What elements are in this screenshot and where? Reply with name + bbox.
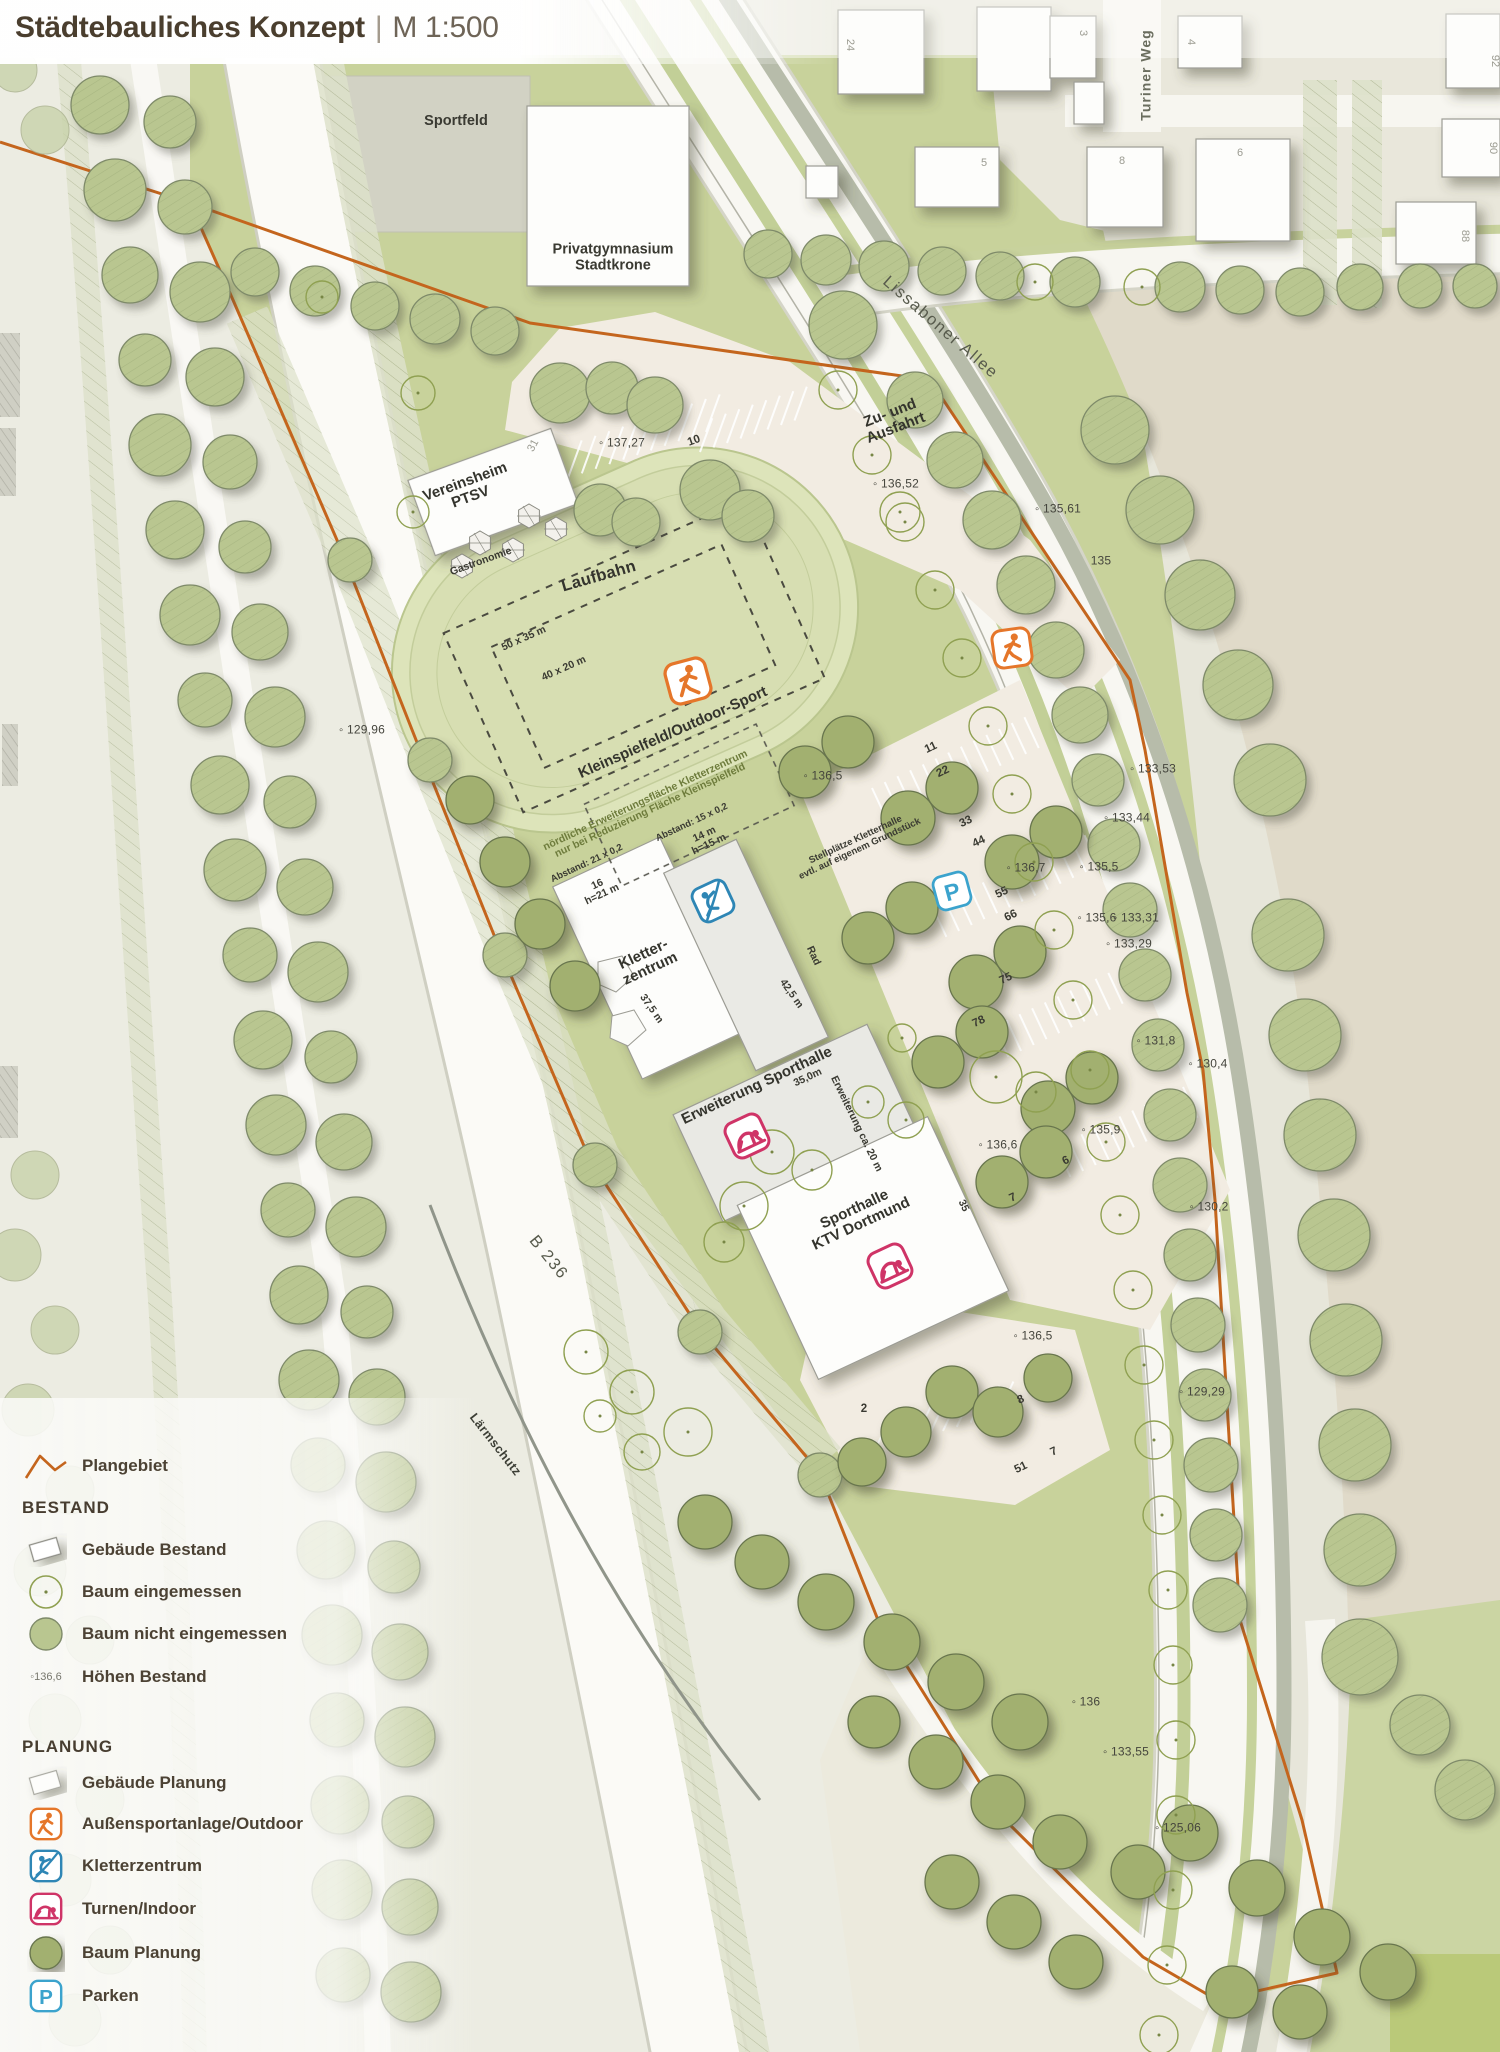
legend-header-bestand: BESTAND (22, 1498, 110, 1518)
bldgB-icon (22, 1533, 70, 1567)
tree-bestand (1103, 883, 1157, 937)
tree-bestand (288, 942, 348, 1002)
tree-bestand (976, 252, 1024, 300)
tree-bestand (809, 291, 877, 359)
tree-bestand (160, 585, 220, 645)
tree-planung (928, 1654, 984, 1710)
tree-bestand (1252, 899, 1324, 971)
tree-bestand (1398, 264, 1442, 308)
legend-item-treeR: Baum eingemessen (22, 1572, 242, 1612)
tree-bestand (158, 180, 212, 234)
tree-planung (973, 1387, 1023, 1437)
tree-bestand (1164, 1229, 1216, 1281)
tree-planung (848, 1696, 900, 1748)
elev-icon: ◦136,6 (22, 1671, 70, 1683)
tree-planung (881, 791, 935, 845)
legend-item-bldgB: Gebäude Bestand (22, 1530, 227, 1570)
tree-planung (446, 776, 494, 824)
tree-planung (515, 899, 565, 949)
building (806, 166, 838, 198)
treeP-icon (22, 1934, 70, 1972)
tree-bestand (234, 1011, 292, 1069)
tree-planung (822, 716, 874, 768)
tree-bestand (277, 859, 333, 915)
tree-planung (1020, 1126, 1072, 1178)
tree-bestand (1435, 1760, 1495, 1820)
tree-bestand (1310, 1304, 1382, 1376)
tree-bestand (1081, 396, 1149, 464)
tree-planung (798, 1574, 854, 1630)
tree-bestand (1072, 754, 1124, 806)
tree-bestand (1453, 264, 1497, 308)
tree-bestand (1337, 264, 1383, 310)
tree-bestand (1144, 1089, 1196, 1141)
tree-planung (971, 1775, 1025, 1829)
tree-planung (987, 1895, 1041, 1949)
title-scale: M 1:500 (392, 11, 498, 44)
tree-bestand (326, 1197, 386, 1257)
tree-bestand (186, 348, 244, 406)
tree-bestand (231, 248, 279, 296)
tree-bestand (1126, 476, 1194, 544)
tree-planung (956, 1006, 1008, 1058)
tree-bestand (1298, 1199, 1370, 1271)
tree-bestand (1319, 1409, 1391, 1481)
tree-bestand (627, 377, 683, 433)
tree-bestand (1050, 257, 1100, 307)
tree-bestand (84, 159, 146, 221)
tree-bestand (1190, 1509, 1242, 1561)
bldgP-icon (22, 1766, 70, 1800)
tree-bestand (1203, 650, 1273, 720)
tree-bestand (129, 414, 191, 476)
legend-item-label: Höhen Bestand (82, 1667, 207, 1687)
tree-bestand (102, 247, 158, 303)
tree-bestand (1052, 687, 1108, 743)
tree-bestand (859, 241, 909, 291)
site-plan-map: P (0, 0, 1500, 2052)
tree-bestand (410, 294, 460, 344)
tree-bestand (1028, 622, 1084, 678)
tree-planung (925, 1855, 979, 1909)
tree-bestand (328, 538, 372, 582)
tree-bestand (341, 1286, 393, 1338)
tree-planung (735, 1535, 789, 1589)
title-separator: | (365, 11, 393, 44)
tree-planung (1033, 1815, 1087, 1869)
tree-bestand (722, 490, 774, 542)
gym-icon (22, 1892, 70, 1926)
legend-item-gym: Turnen/Indoor (22, 1889, 196, 1929)
tree-bestand (1322, 1619, 1398, 1695)
tree-planung (909, 1735, 963, 1789)
building (1196, 139, 1290, 241)
legend-header-planung: PLANUNG (22, 1737, 113, 1757)
tree-bestand (887, 372, 943, 428)
legend-item-treeP: Baum Planung (22, 1933, 201, 1973)
tree-muted (31, 1306, 79, 1354)
tree-bestand (1284, 1099, 1356, 1171)
tree-planung (886, 882, 938, 934)
tree-bestand (316, 1114, 372, 1170)
tree-planung (949, 955, 1003, 1009)
tree-bestand (71, 76, 129, 134)
tree-bestand (1216, 266, 1264, 314)
tree-bestand (305, 1031, 357, 1083)
runner-icon (22, 1807, 70, 1841)
tree-bestand (997, 556, 1055, 614)
tree-planung (864, 1614, 920, 1670)
legend-item-treeB: Baum nicht eingemessen (22, 1614, 287, 1654)
tree-bestand (1155, 262, 1205, 312)
legend-item-label: Außensportanlage/Outdoor (82, 1814, 303, 1834)
tree-bestand (191, 756, 249, 814)
legend-item-parkP: Parken (22, 1976, 139, 2016)
tree-bestand (1193, 1578, 1247, 1632)
tree-bestand (612, 498, 660, 546)
tree-bestand (270, 1266, 328, 1324)
tree-bestand (1165, 560, 1235, 630)
tree-planung (842, 912, 894, 964)
legend-item-bldgP: Gebäude Planung (22, 1763, 227, 1803)
legend-item-elev: ◦136,6Höhen Bestand (22, 1657, 207, 1697)
legend-item-label: Kletterzentrum (82, 1856, 202, 1876)
tree-bestand (918, 247, 966, 295)
legend-item-runner: Außensportanlage/Outdoor (22, 1804, 303, 1844)
legend-item-label: Plangebiet (82, 1456, 168, 1476)
tree-planung (912, 1036, 964, 1088)
tree-planung (1030, 806, 1082, 858)
tree-bestand (203, 435, 257, 489)
tree-planung (926, 1366, 978, 1418)
map-canvas: P (0, 0, 1500, 2052)
building (1087, 147, 1163, 227)
tree-planung (480, 837, 530, 887)
tree-bestand (1390, 1695, 1450, 1755)
building (1074, 82, 1104, 124)
legend-item-label: Parken (82, 1986, 139, 2006)
tree-bestand (1132, 1019, 1184, 1071)
tree-planung (1294, 1909, 1350, 1965)
tree-bestand (1153, 1158, 1207, 1212)
tree-muted (21, 106, 69, 154)
tree-planung (976, 1156, 1028, 1208)
tree-bestand (530, 363, 590, 423)
tree-bestand (170, 262, 230, 322)
tree-bestand (246, 1095, 306, 1155)
tree-planung (926, 762, 978, 814)
building (1442, 119, 1500, 177)
tree-bestand (573, 1143, 617, 1187)
parkP-icon (22, 1979, 70, 2013)
tree-planung (678, 1495, 732, 1549)
tree-planung (1360, 1944, 1416, 2000)
tree-planung (1273, 1985, 1327, 2039)
building (1396, 202, 1476, 264)
tree-bestand (232, 604, 288, 660)
tree-bestand (144, 96, 196, 148)
tree-planung (1206, 1966, 1258, 2018)
tree-bestand (744, 230, 792, 278)
tree-bestand (1184, 1438, 1238, 1492)
legend-item-label: Baum Planung (82, 1943, 201, 1963)
tree-planung (779, 746, 831, 798)
legend-item-plangebiet: Plangebiet (22, 1446, 168, 1486)
tree-bestand (408, 738, 452, 782)
tree-bestand (1234, 744, 1306, 816)
building (527, 106, 689, 286)
tree-planung (1111, 1845, 1165, 1899)
tree-bestand (801, 235, 851, 285)
building (915, 147, 999, 207)
tree-bestand (1119, 949, 1171, 1001)
tree-bestand (261, 1183, 315, 1237)
tree-bestand (223, 928, 277, 982)
tree-bestand (204, 839, 266, 901)
tree-bestand (119, 334, 171, 386)
legend-item-label: Turnen/Indoor (82, 1899, 196, 1919)
page-title: Städtebauliches Konzept|M 1:500 (15, 11, 499, 45)
tree-bestand (1179, 1369, 1231, 1421)
climber-icon (22, 1849, 70, 1883)
treeR-icon (22, 1573, 70, 1611)
tree-bestand (471, 307, 519, 355)
legend-item-label: Baum eingemessen (82, 1582, 242, 1602)
tree-bestand (678, 1310, 722, 1354)
title-main: Städtebauliches Konzept (15, 11, 365, 44)
tree-bestand (1171, 1298, 1225, 1352)
legend-item-label: Gebäude Bestand (82, 1540, 227, 1560)
legend-item-climber: Kletterzentrum (22, 1846, 202, 1886)
tree-bestand (264, 776, 316, 828)
tree-planung (838, 1438, 886, 1486)
tree-bestand (1324, 1514, 1396, 1586)
plangebiet-icon (22, 1446, 70, 1486)
tree-planung (992, 1694, 1048, 1750)
tree-bestand (963, 491, 1021, 549)
tree-bestand (351, 282, 399, 330)
tree-bestand (798, 1453, 842, 1497)
tree-planung (994, 926, 1046, 978)
tree-bestand (178, 673, 232, 727)
tree-planung (1229, 1860, 1285, 1916)
tree-bestand (219, 521, 271, 573)
treeB-icon (22, 1615, 70, 1653)
tree-bestand (146, 501, 204, 559)
tree-bestand (927, 432, 983, 488)
tree-planung (881, 1407, 931, 1457)
tree-planung (550, 961, 600, 1011)
tree-planung (1024, 1354, 1072, 1402)
tree-bestand (1269, 999, 1341, 1071)
tree-bestand (1088, 819, 1140, 871)
tree-bestand (245, 687, 305, 747)
tree-planung (1049, 1935, 1103, 1989)
legend-item-label: Baum nicht eingemessen (82, 1624, 287, 1644)
legend-item-label: Gebäude Planung (82, 1773, 227, 1793)
tree-bestand (1276, 268, 1324, 316)
tree-muted (11, 1151, 59, 1199)
